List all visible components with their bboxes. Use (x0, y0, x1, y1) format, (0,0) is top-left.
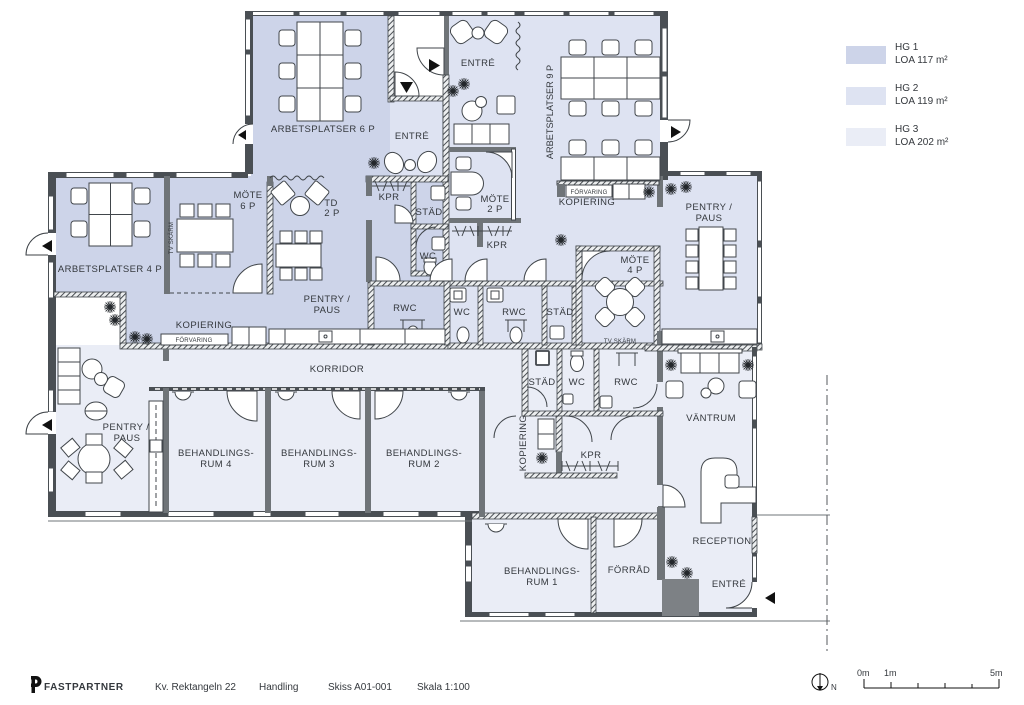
svg-text:LOA 117 m²: LOA 117 m² (895, 55, 948, 66)
svg-text:PAUS: PAUS (696, 213, 723, 224)
svg-text:MÖTE: MÖTE (233, 190, 262, 201)
svg-text:KOPIERING: KOPIERING (176, 320, 232, 331)
svg-text:LOA 119 m²: LOA 119 m² (895, 96, 948, 107)
svg-text:KPR: KPR (487, 240, 508, 251)
svg-text:BEHANDLINGS-: BEHANDLINGS- (281, 448, 357, 459)
svg-text:TV SKÄRM: TV SKÄRM (604, 338, 636, 345)
svg-text:RUM 3: RUM 3 (303, 459, 335, 470)
svg-text:HG 1: HG 1 (895, 42, 919, 53)
svg-text:KOPIERING: KOPIERING (559, 197, 615, 208)
svg-text:ENTRÉ: ENTRÉ (712, 579, 746, 590)
svg-text:STÄD: STÄD (547, 307, 574, 318)
svg-text:2 P: 2 P (324, 208, 339, 219)
svg-text:WC: WC (569, 377, 586, 388)
svg-text:N: N (831, 683, 837, 692)
svg-text:PENTRY /: PENTRY / (304, 294, 351, 305)
svg-text:Skiss A01-001: Skiss A01-001 (328, 682, 392, 693)
svg-text:RECEPTION: RECEPTION (692, 536, 751, 547)
svg-text:4 P: 4 P (627, 265, 642, 276)
svg-text:Skala 1:100: Skala 1:100 (417, 682, 470, 693)
svg-text:PENTRY /: PENTRY / (103, 422, 150, 433)
svg-text:WC: WC (420, 251, 437, 262)
svg-text:RWC: RWC (502, 307, 526, 318)
svg-text:6 P: 6 P (240, 201, 255, 212)
svg-text:KPR: KPR (379, 192, 400, 203)
svg-text:PAUS: PAUS (114, 433, 141, 444)
svg-text:KORRIDOR: KORRIDOR (310, 364, 364, 375)
svg-text:PAUS: PAUS (314, 305, 341, 316)
svg-text:0m: 0m (857, 668, 870, 678)
svg-text:2 P: 2 P (487, 204, 502, 215)
svg-text:FASTPARTNER: FASTPARTNER (44, 682, 124, 693)
svg-text:KPR: KPR (581, 450, 602, 461)
svg-text:RUM 1: RUM 1 (526, 577, 558, 588)
svg-text:ARBETSPLATSER 9 P: ARBETSPLATSER 9 P (545, 65, 555, 159)
svg-text:STÄD: STÄD (529, 377, 556, 388)
svg-text:TV SKÄRM: TV SKÄRM (168, 222, 175, 254)
svg-text:5m: 5m (990, 668, 1003, 678)
svg-text:STÄD: STÄD (416, 207, 443, 218)
svg-text:WC: WC (454, 307, 471, 318)
svg-text:FÖRVARING: FÖRVARING (176, 337, 213, 344)
svg-text:BEHANDLINGS-: BEHANDLINGS- (178, 448, 254, 459)
svg-text:ARBETSPLATSER 6 P: ARBETSPLATSER 6 P (271, 124, 375, 135)
svg-text:VÄNTRUM: VÄNTRUM (686, 413, 736, 424)
svg-text:RUM 2: RUM 2 (408, 459, 440, 470)
svg-text:RWC: RWC (393, 303, 417, 314)
svg-text:HG 2: HG 2 (895, 83, 919, 94)
svg-text:HG 3: HG 3 (895, 124, 919, 135)
svg-text:BEHANDLINGS-: BEHANDLINGS- (386, 448, 462, 459)
svg-text:FÖRRÅD: FÖRRÅD (608, 565, 651, 576)
svg-text:Handling: Handling (259, 682, 298, 693)
svg-text:RUM 4: RUM 4 (200, 459, 232, 470)
svg-text:Kv. Rektangeln 22: Kv. Rektangeln 22 (155, 682, 236, 693)
svg-text:FÖRVARING: FÖRVARING (571, 189, 608, 196)
svg-text:ENTRÉ: ENTRÉ (395, 131, 429, 142)
svg-text:BEHANDLINGS-: BEHANDLINGS- (504, 566, 580, 577)
svg-text:LOA 202 m²: LOA 202 m² (895, 137, 949, 148)
svg-text:ARBETSPLATSER 4 P: ARBETSPLATSER 4 P (58, 264, 162, 275)
svg-text:KOPIERING: KOPIERING (518, 415, 529, 471)
svg-text:RWC: RWC (614, 377, 638, 388)
svg-text:1m: 1m (884, 668, 897, 678)
svg-text:ENTRÉ: ENTRÉ (461, 58, 495, 69)
svg-text:PENTRY /: PENTRY / (686, 202, 733, 213)
